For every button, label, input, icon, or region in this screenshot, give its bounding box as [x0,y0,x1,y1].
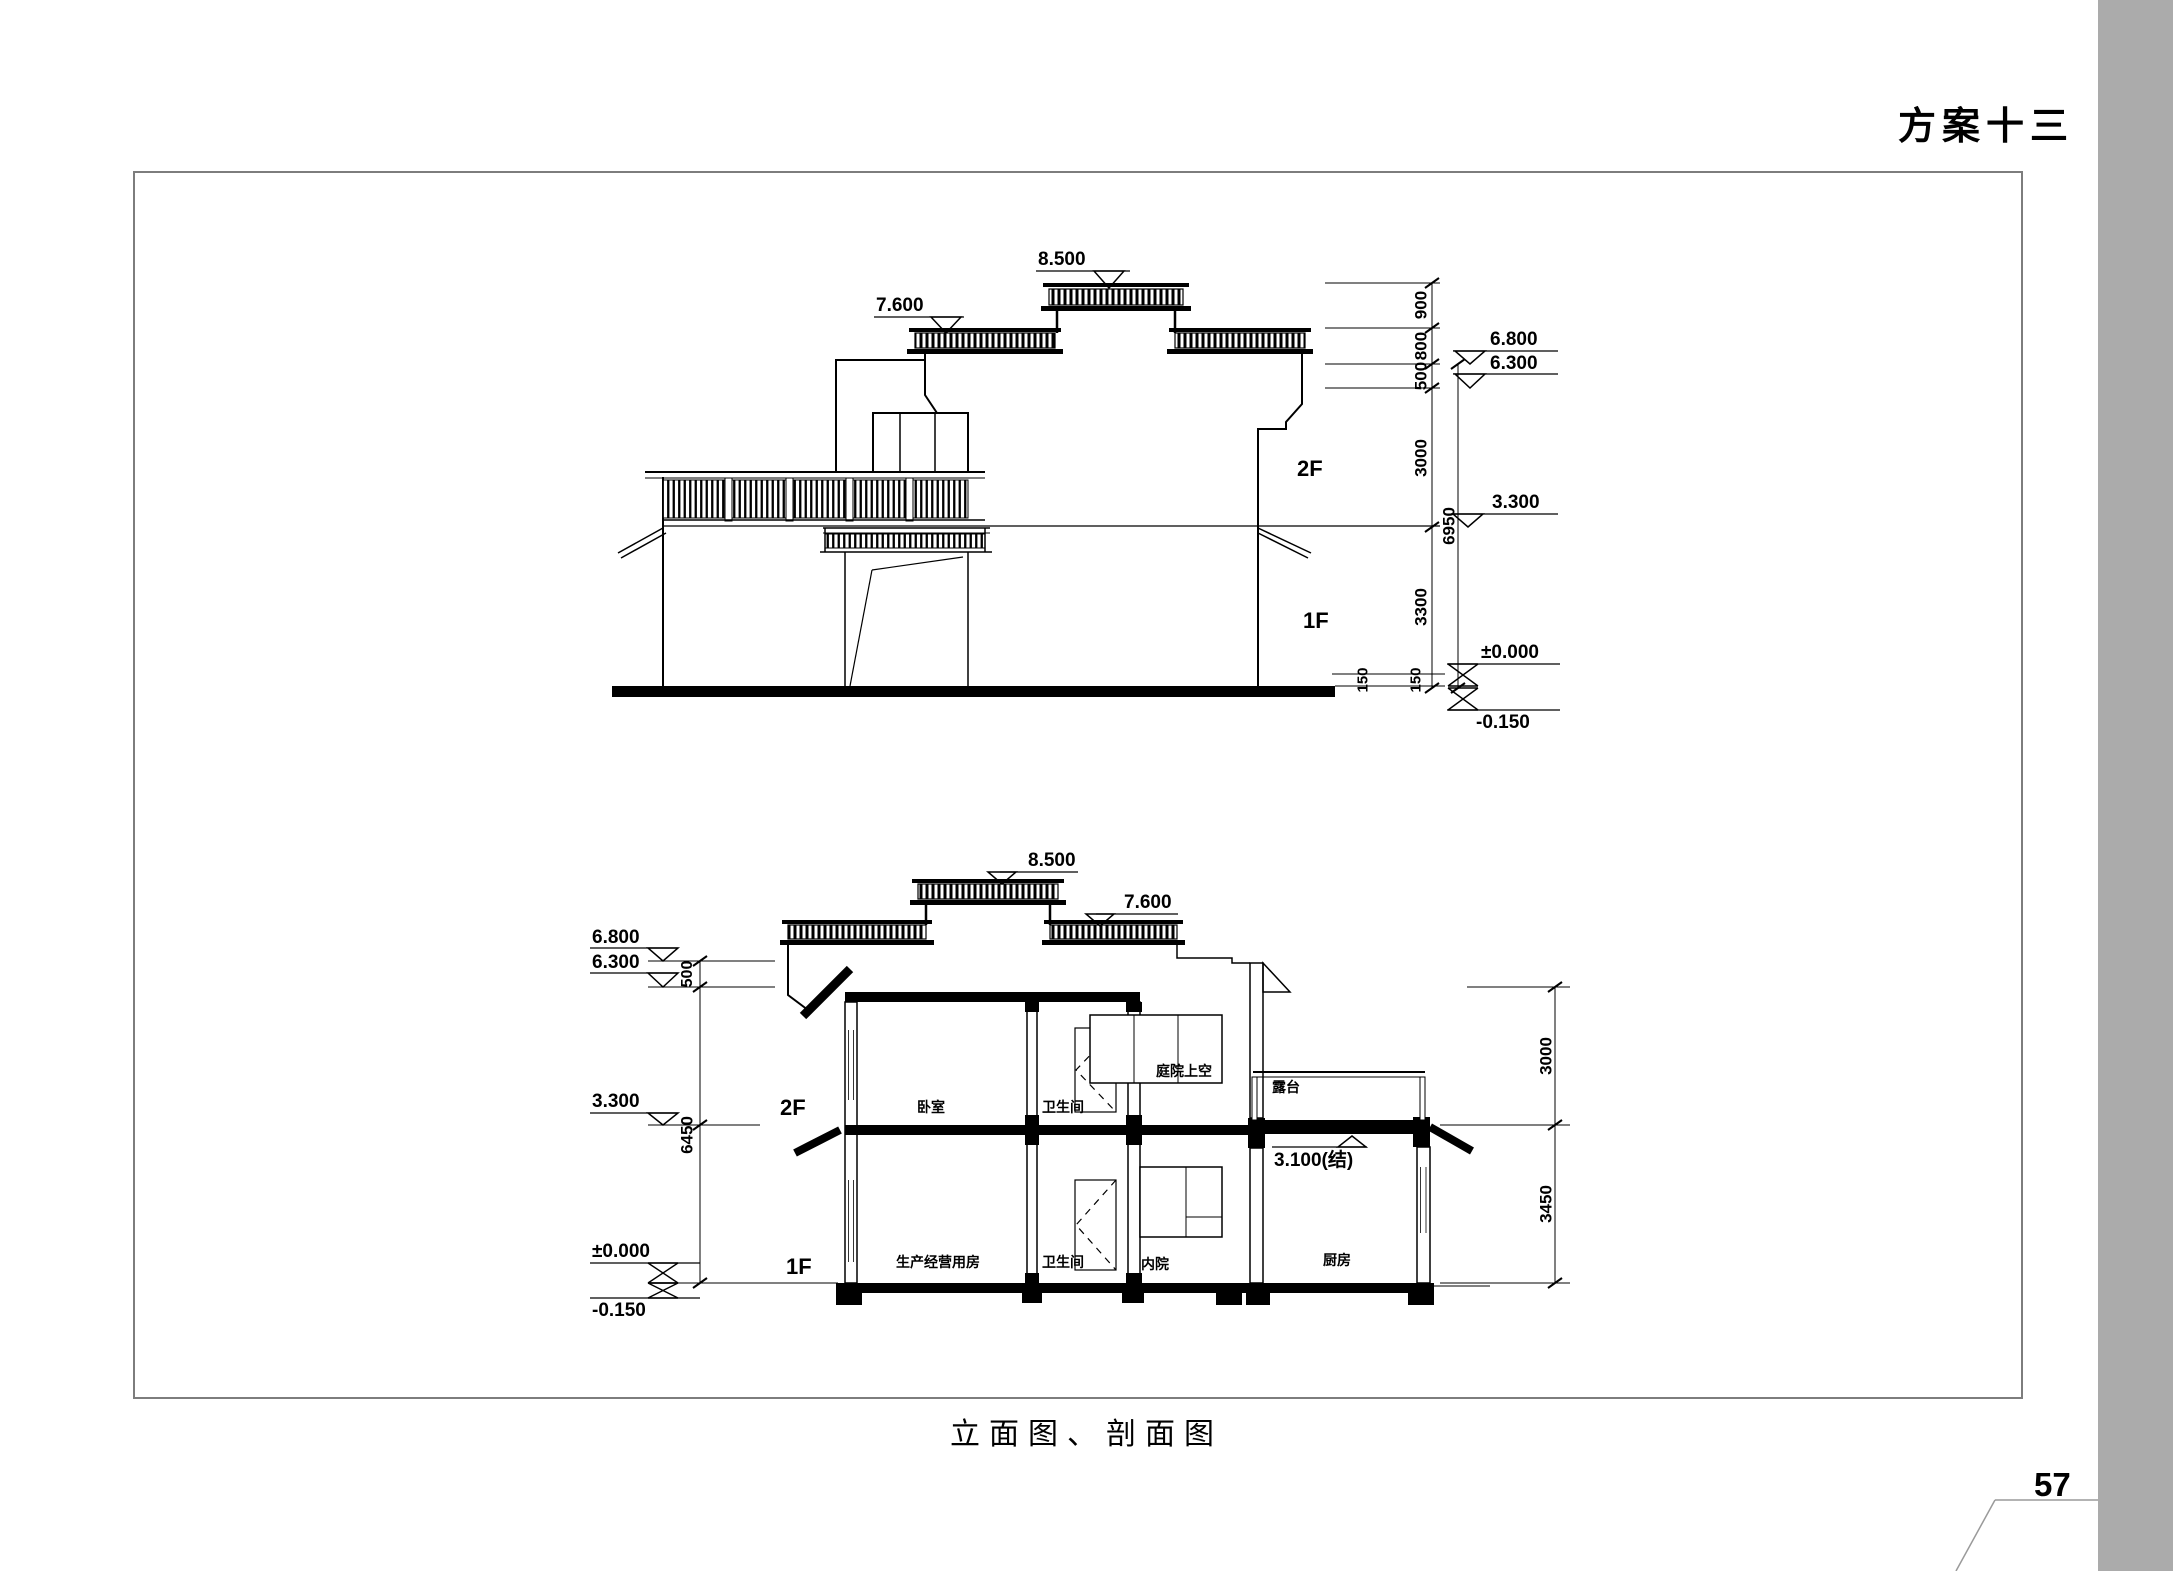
elev-level-eave-low: 6.300 [1490,354,1538,373]
sect-room-kitchen: 厨房 [1323,1253,1351,1267]
elev-dim-150a: 150 [1356,667,1371,692]
sect-room-courtyard-above: 庭院上空 [1156,1064,1212,1078]
sect-floor-1f: 1F [786,1256,812,1278]
elev-level-roof-top: 8.500 [1038,250,1086,269]
sect-dim-3000: 3000 [1538,1037,1555,1075]
sect-room-inner-courtyard: 内院 [1141,1257,1169,1271]
elev-dim-800: 800 [1413,332,1430,360]
plan-heading: 方案十三 [1898,108,2074,146]
sect-level-eave-low: 6.300 [592,953,640,972]
elev-dim-500: 500 [1413,362,1430,390]
elev-level-floor2: 3.300 [1492,493,1540,512]
elev-floor-1f: 1F [1303,610,1329,632]
sect-level-ground: ±0.000 [592,1242,650,1261]
sect-room-terrace: 露台 [1272,1080,1300,1094]
sect-level-roof-top: 8.500 [1028,851,1076,870]
sect-dim-3450: 3450 [1538,1185,1555,1223]
page: 方案十三 立面图、剖面图 57 8.500 7.600 6.800 6.300 … [0,0,2173,1571]
section-drawing [590,872,1570,1305]
elev-dim-3300: 3300 [1413,588,1430,626]
sect-room-bedroom: 卧室 [917,1100,945,1114]
figure-caption: 立面图、剖面图 [950,1420,1223,1450]
sect-room-bathroom-1f: 卫生间 [1042,1255,1084,1269]
sect-room-production: 生产经营用房 [896,1255,980,1269]
page-number: 57 [2034,1468,2071,1501]
elev-floor-2f: 2F [1297,458,1323,480]
sect-dim-500: 500 [680,961,696,988]
elev-level-ground: ±0.000 [1481,643,1539,662]
sect-level-terrace: 3.100(结) [1274,1151,1353,1170]
elev-dim-900: 900 [1413,291,1430,319]
sect-level-eave-high: 6.800 [592,928,640,947]
sect-level-floor2: 3.300 [592,1092,640,1111]
drawing-canvas [0,0,2173,1571]
elev-dim-150b: 150 [1409,667,1424,692]
sect-level-site: -0.150 [592,1301,646,1320]
sect-room-bathroom-2f: 卫生间 [1042,1100,1084,1114]
elev-dim-6950: 6950 [1441,507,1458,545]
page-corner-rule [1956,1500,2098,1571]
elev-level-site: -0.150 [1476,713,1530,732]
elev-level-eave-high: 6.800 [1490,330,1538,349]
sect-level-roof-side: 7.600 [1124,893,1172,912]
elev-dim-3000: 3000 [1413,439,1430,477]
elev-level-roof-side: 7.600 [876,296,924,315]
sect-dim-6450: 6450 [679,1116,696,1154]
sect-floor-2f: 2F [780,1097,806,1119]
